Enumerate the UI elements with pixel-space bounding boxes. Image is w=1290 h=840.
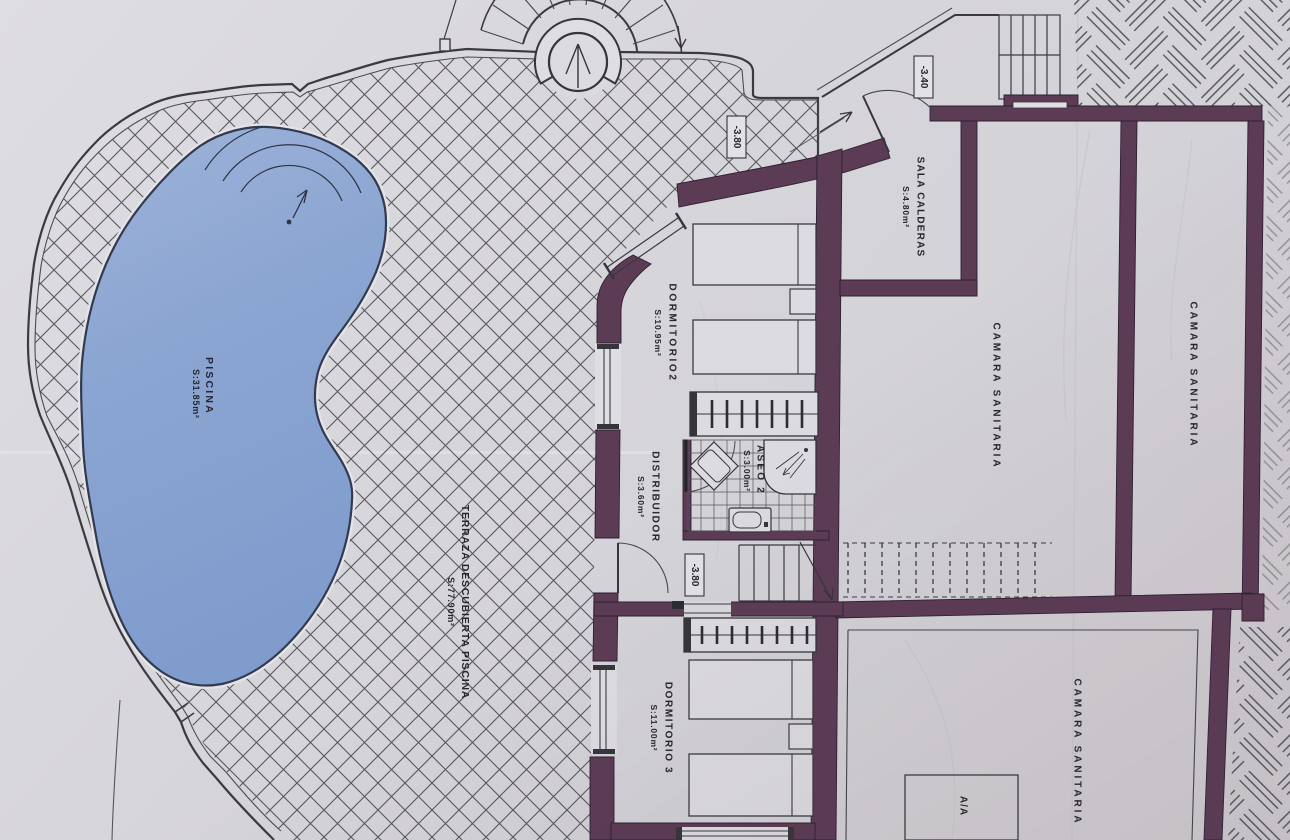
svg-text:-3.40: -3.40 (918, 66, 929, 89)
svg-text:PISCINA: PISCINA (203, 357, 215, 415)
svg-text:A/A: A/A (958, 796, 969, 816)
svg-text:DISTRIBUIDOR: DISTRIBUIDOR (650, 451, 661, 542)
svg-text:CAMARA SANITARIA: CAMARA SANITARIA (991, 323, 1002, 470)
svg-text:-3.80: -3.80 (731, 126, 742, 149)
svg-text:CAMARA SANITARIA: CAMARA SANITARIA (1072, 679, 1083, 826)
svg-text:S:3.60m²: S:3.60m² (636, 476, 646, 518)
svg-text:-3.80: -3.80 (689, 564, 700, 587)
svg-text:S:11.00m²: S:11.00m² (649, 705, 659, 752)
svg-text:CAMARA SANITARIA: CAMARA SANITARIA (1188, 302, 1199, 449)
svg-text:ASEO 2: ASEO 2 (755, 445, 766, 495)
svg-text:SALA CALDERAS: SALA CALDERAS (915, 157, 926, 258)
svg-text:S:4.80m²: S:4.80m² (901, 186, 911, 228)
svg-text:S:10.95m²: S:10.95m² (653, 309, 663, 356)
svg-text:DORMITORIO2: DORMITORIO2 (667, 284, 678, 383)
svg-text:S:3.00m²: S:3.00m² (742, 450, 752, 492)
svg-text:TERRAZA DESCUBIERTA PISCINA: TERRAZA DESCUBIERTA PISCINA (459, 505, 471, 699)
svg-text:DORMITORIO 3: DORMITORIO 3 (663, 682, 674, 774)
svg-text:S:31.85m²: S:31.85m² (191, 369, 201, 419)
svg-text:S:77.90m²: S:77.90m² (446, 577, 456, 627)
